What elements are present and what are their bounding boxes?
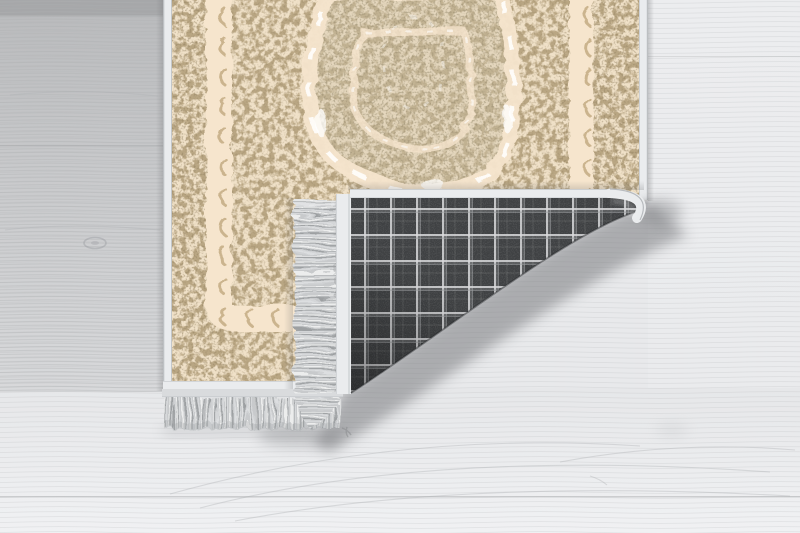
floor-grain-left: [0, 0, 163, 392]
rug-binding-left: [163, 0, 172, 391]
floor-smudge: [656, 423, 688, 437]
rug-binding-right: [639, 0, 648, 202]
product-photo: Cream oriental medallion rug with bottom…: [0, 0, 800, 533]
flap-fringe: [292, 197, 337, 391]
fold-corner-shadow: [642, 199, 682, 225]
right-edge-shadow: [648, 0, 654, 201]
medallion-glint-right: [501, 104, 511, 132]
medallion-glint-left: [313, 106, 323, 134]
flap-cast-shadow-left: [284, 198, 293, 392]
scene-svg: [0, 0, 800, 533]
medallion: [300, 0, 520, 195]
flap-binding-left: [336, 194, 351, 394]
fringe-header-line: [162, 396, 343, 397]
flap-fringe-edge-shading: [333, 197, 336, 391]
flap-fringe-top-light: [292, 197, 337, 203]
left-edge-shadow: [156, 0, 163, 391]
flap-binding-top: [350, 189, 612, 199]
bottom-fringe-shadow: [163, 426, 318, 435]
flap-cast-shadow-top: [348, 181, 644, 190]
